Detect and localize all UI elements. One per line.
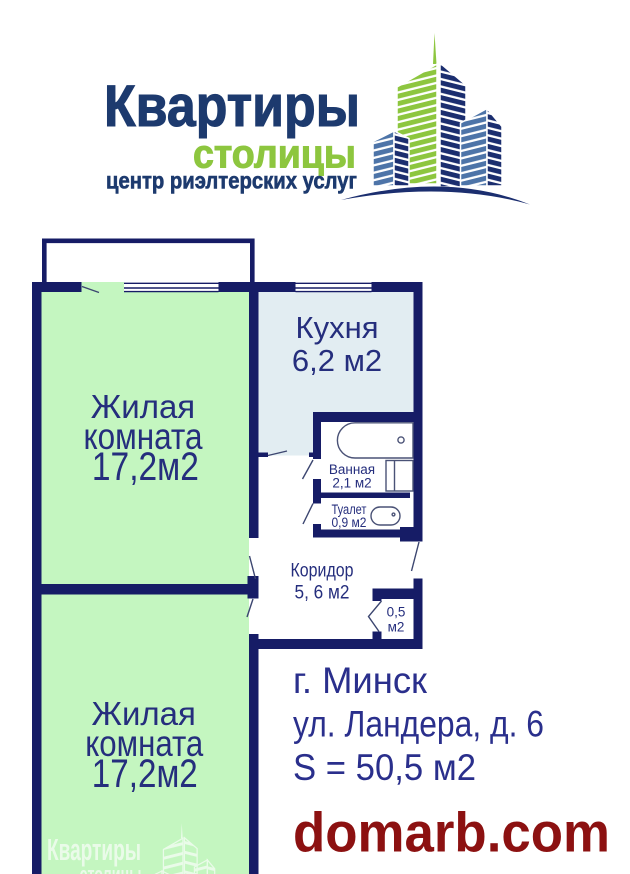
svg-text:5, 6 м2: 5, 6 м2 — [295, 583, 350, 604]
svg-text:ул. Ландера, д. 6: ул. Ландера, д. 6 — [293, 704, 544, 745]
svg-text:0,9 м2: 0,9 м2 — [332, 515, 367, 530]
svg-text:центр риэлтерских услуг: центр риэлтерских услуг — [106, 168, 357, 194]
svg-text:17,2м2: 17,2м2 — [92, 445, 199, 489]
svg-text:2,1 м2: 2,1 м2 — [332, 475, 371, 490]
svg-text:Кухня: Кухня — [296, 310, 379, 345]
svg-text:столицы: столицы — [80, 862, 142, 874]
svg-text:Коридор: Коридор — [291, 561, 354, 582]
svg-text:г. Минск: г. Минск — [293, 660, 428, 701]
svg-text:6,2 м2: 6,2 м2 — [292, 343, 382, 378]
svg-text:17,2м2: 17,2м2 — [92, 752, 198, 796]
svg-text:0,5: 0,5 — [387, 605, 406, 620]
svg-text:S = 50,5 м2: S = 50,5 м2 — [293, 747, 476, 788]
svg-text:м2: м2 — [388, 620, 405, 635]
svg-text:domarb.com: domarb.com — [293, 801, 610, 864]
svg-text:Квартиры: Квартиры — [104, 74, 360, 139]
